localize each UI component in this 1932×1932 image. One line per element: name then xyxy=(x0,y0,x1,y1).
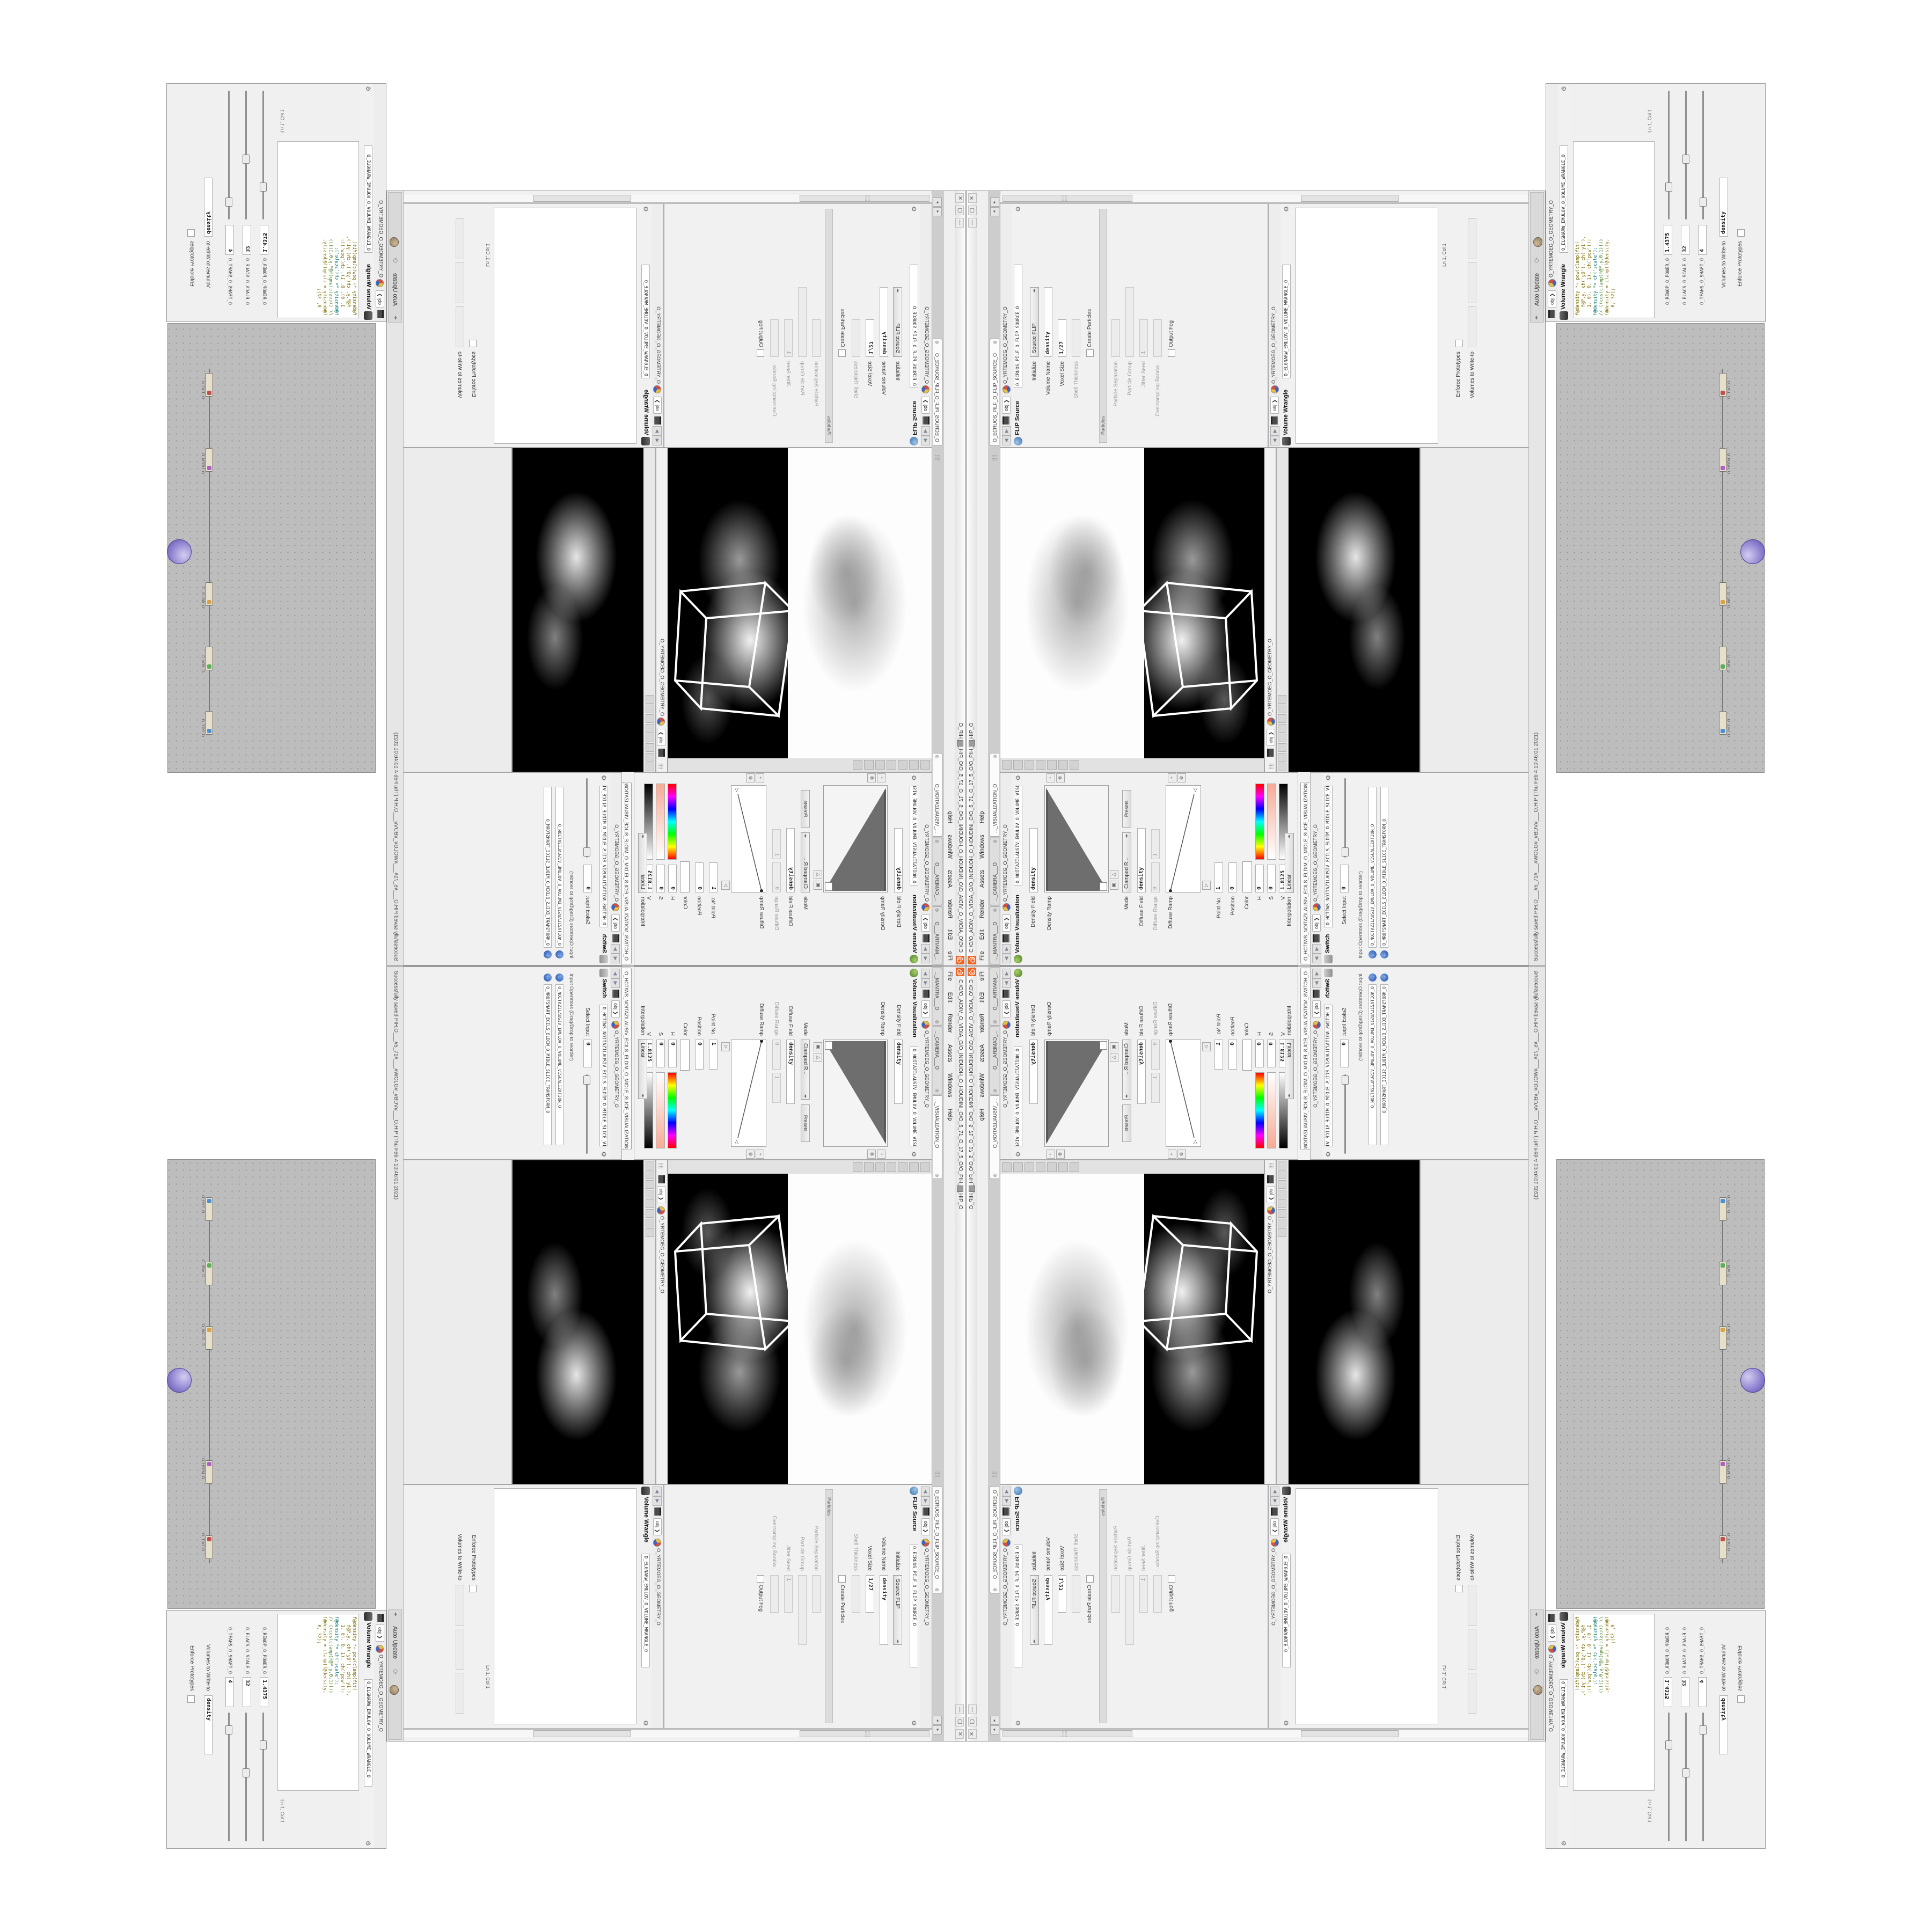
node-name-field[interactable]: O_HCTIWS_NOITAZILAUSIV_ECILS_ELDIM_O_MID… xyxy=(599,1005,608,1146)
particles-section-bar[interactable]: Particles xyxy=(1099,209,1107,443)
input-operator-name[interactable]: O_NOITAZILAUSIV_EMULOV_O_VOLUME_VISUALIZ… xyxy=(555,787,563,948)
node-name-field[interactable]: O_ELGNARW_EMULOV_O_VOLUME_WRANGLE_O xyxy=(364,145,372,253)
diffuse-range-min[interactable]: 0 xyxy=(1151,862,1160,892)
move-tool-icon[interactable] xyxy=(909,760,919,770)
tab-visualization[interactable]: ..._VISUALIZATION_O⊗ xyxy=(990,753,999,837)
ramp-delete-icon[interactable]: ⊗ xyxy=(1177,773,1186,782)
slider-handle[interactable] xyxy=(243,155,250,164)
input-operator-name[interactable]: O_NOITAZILAUSIV_EMULOV_O_VOLUME_VISUALIZ… xyxy=(555,984,563,1145)
ramp-marker[interactable] xyxy=(825,1041,832,1050)
grid-icon[interactable] xyxy=(646,1219,654,1227)
clapboard-icon[interactable] xyxy=(1548,1614,1555,1622)
tab-scroll-right-icon[interactable]: ▸ xyxy=(933,197,942,207)
close-tab-icon[interactable]: ⊗ xyxy=(933,908,942,912)
move-tool-icon[interactable] xyxy=(1013,1162,1023,1172)
node-name-field[interactable]: O_NOITAZILAUSIV_EMULOV_O_VOLUME_VISUALIZ… xyxy=(1014,1046,1022,1146)
color-swatch[interactable] xyxy=(680,1040,690,1071)
slider-handle[interactable] xyxy=(1665,1740,1672,1750)
tab-switch[interactable]: O_HCTIWS_NOITAZILAUSIV_ECILS_ELDIM_O_MID… xyxy=(622,968,632,1150)
clapboard-icon[interactable] xyxy=(1002,990,1009,998)
mode-dropdown[interactable]: Clamped R...◂▸ xyxy=(1122,1040,1131,1100)
path-node-name[interactable]: O_YRTEMOEG_O_GEOMETRY_O xyxy=(1548,200,1554,277)
path-node-name[interactable]: O_YRTEMOEG_O_GEOMETRY_O xyxy=(924,306,930,384)
volume-name-value[interactable]: density xyxy=(1044,287,1052,357)
menu-help[interactable]: Help xyxy=(977,1104,985,1126)
ramp-add-icon[interactable]: + xyxy=(756,773,764,782)
recook-icon[interactable]: ⟳ xyxy=(1533,257,1541,263)
ramp-end-marker-icon[interactable]: ◁ xyxy=(734,788,740,792)
diffuse-range-max[interactable]: 1 xyxy=(772,1073,781,1103)
clapboard-icon[interactable] xyxy=(1271,416,1278,425)
node-name-field[interactable]: O_ECRUOS_PILF_O_FLIP_SOURCE_O xyxy=(1014,1544,1022,1667)
clapboard-icon[interactable] xyxy=(1271,1507,1278,1516)
mode-dropdown[interactable]: Clamped R...◂▸ xyxy=(801,832,810,892)
ramp-flip-icon[interactable]: ▣ xyxy=(1110,881,1118,890)
pane-grip-icon[interactable]: ⣿⣿ xyxy=(1268,1162,1274,1168)
ramp-open-icon[interactable]: ▷ xyxy=(1202,881,1211,890)
nav-back-icon[interactable]: ◀ xyxy=(921,436,930,445)
tab-scroll-right-icon[interactable]: ▸ xyxy=(933,1725,942,1735)
network-node[interactable] xyxy=(205,1326,213,1350)
diffuse-range-max[interactable]: 1 xyxy=(1151,1073,1160,1103)
diffuse-range-min[interactable]: 0 xyxy=(772,862,781,892)
select-input-value[interactable]: 0 xyxy=(1340,865,1349,892)
gear-icon[interactable]: ⚙ xyxy=(1283,206,1290,212)
aov-icon[interactable] xyxy=(1278,695,1286,704)
diffuse-range-max[interactable]: 1 xyxy=(772,829,781,859)
volumes-box-3[interactable] xyxy=(1468,218,1476,259)
point-no-value[interactable]: 1 xyxy=(1214,1040,1223,1070)
oversampling-value[interactable] xyxy=(770,1575,779,1613)
diffuse-ramp-widget[interactable]: ◁ xyxy=(1166,1040,1201,1147)
network-node[interactable] xyxy=(1719,1197,1727,1221)
nav-forward-icon[interactable]: ▶ xyxy=(653,1496,662,1506)
gear-icon[interactable]: ⚙ xyxy=(642,206,649,212)
close-button[interactable]: ✕ xyxy=(968,1729,977,1739)
minimize-button[interactable]: — xyxy=(968,1704,977,1714)
menu-help[interactable]: Help xyxy=(947,807,955,829)
pause-icon[interactable] xyxy=(1278,753,1286,762)
gear-icon[interactable]: ⚙ xyxy=(1560,1840,1568,1846)
tab-mantra[interactable]: ..._MANTRA___O⊗ xyxy=(933,968,942,1026)
clapboard-icon[interactable] xyxy=(1002,416,1009,425)
scale-slider-value[interactable]: 32 xyxy=(243,1677,251,1707)
menu-assets[interactable]: Assets xyxy=(947,865,955,892)
power-slider-value[interactable]: 1.4375 xyxy=(260,225,268,255)
slider-handle[interactable] xyxy=(1682,155,1689,164)
ramp-add-icon[interactable]: + xyxy=(756,1150,764,1159)
slider-handle[interactable] xyxy=(583,847,590,857)
clapboard-icon[interactable] xyxy=(1548,310,1555,318)
ramp-flip-icon[interactable]: ▣ xyxy=(1110,1042,1118,1051)
scale-slider-value[interactable]: 32 xyxy=(243,225,251,255)
select-input-value[interactable]: 0 xyxy=(1340,1040,1349,1067)
diffuse-range-min[interactable]: 0 xyxy=(772,1040,781,1070)
node-name-field[interactable]: O_ECRUOS_PILF_O_FLIP_SOURCE_O xyxy=(910,265,918,388)
tab-scroll-left-icon[interactable]: ◂ xyxy=(933,207,942,216)
volumes-box-2[interactable] xyxy=(456,262,464,303)
ramp-open-icon[interactable]: ▷ xyxy=(721,1042,730,1051)
nav-forward-icon[interactable]: ▶ xyxy=(653,426,662,436)
nav-back-icon[interactable]: ◀ xyxy=(921,969,930,978)
tab-grip-icon[interactable]: ⣿⣿ xyxy=(991,455,997,461)
pane-scrollbar[interactable]: ⣿⣿ xyxy=(1000,1729,1529,1738)
nav-back-icon[interactable]: ◀ xyxy=(921,1487,930,1496)
network-node[interactable] xyxy=(1719,1262,1727,1285)
input-operator-name[interactable]: O_MROFSNART_ECILS_ELDIM_O_MIDLE_SLICE_TR… xyxy=(544,787,552,948)
context-flag[interactable]: obj ❯ xyxy=(1267,1186,1275,1203)
bg-icon[interactable] xyxy=(1278,1209,1286,1218)
sat-slider[interactable] xyxy=(1267,784,1276,860)
create-particles-checkbox[interactable] xyxy=(838,1575,846,1583)
jitter-seed-value[interactable]: 1 xyxy=(784,1575,793,1613)
path-node-name[interactable]: O_YRTEMOEG_O_GEOMETRY_O xyxy=(656,306,661,384)
update-arrows-icon[interactable]: ◂▸ xyxy=(1534,316,1539,320)
clapboard-icon[interactable] xyxy=(1002,1507,1009,1516)
nav-forward-icon[interactable]: ▶ xyxy=(921,944,930,954)
nav-back-icon[interactable]: ◀ xyxy=(653,436,662,445)
tab-scroll-right-icon[interactable]: ▸ xyxy=(990,197,999,207)
network-node[interactable] xyxy=(205,711,213,735)
volumes-box-1[interactable] xyxy=(456,1585,464,1626)
node-name-field[interactable]: O_HCTIWS_NOITAZILAUSIV_ECILS_ELDIM_O_MID… xyxy=(599,786,608,927)
clapboard-icon[interactable] xyxy=(1313,934,1320,942)
menu-file[interactable]: File xyxy=(977,967,985,986)
network-node[interactable] xyxy=(1719,711,1727,735)
shaft-slider[interactable] xyxy=(1702,91,1704,219)
node-name-field[interactable]: O_HCTIWS_NOITAZILAUSIV_ECILS_ELDIM_O_MID… xyxy=(1324,786,1333,927)
update-arrows-icon[interactable]: ◂▸ xyxy=(393,1612,398,1616)
close-tab-icon[interactable]: ⊗ xyxy=(933,1020,942,1024)
clapboard-icon[interactable] xyxy=(1002,934,1009,942)
clapboard-icon[interactable] xyxy=(612,990,619,998)
ramp-marker[interactable] xyxy=(825,882,832,891)
select-input-slider[interactable] xyxy=(586,778,588,858)
volumes-to-write-value[interactable]: density xyxy=(1719,1695,1728,1754)
context-flag[interactable]: obj ❯ xyxy=(921,1518,930,1535)
scrollbar-thumb[interactable]: ⣿⣿ xyxy=(1002,195,1132,202)
initialize-dropdown[interactable]: Source FLIP◂▸ xyxy=(1030,1575,1039,1645)
clapboard-icon[interactable] xyxy=(923,1507,930,1516)
nav-back-icon[interactable]: ◀ xyxy=(1312,954,1321,963)
tab-switch[interactable]: O_HCTIWS_NOITAZILAUSIV_ECILS_ELDIM_O_MID… xyxy=(1300,782,1310,964)
diffuse-field-value[interactable]: density xyxy=(786,828,795,892)
aov-icon[interactable] xyxy=(1278,1228,1286,1237)
close-tab-icon[interactable]: ⊗ xyxy=(1301,1144,1310,1148)
nav-forward-icon[interactable]: ▶ xyxy=(1312,978,1321,988)
hue-value[interactable]: 0 xyxy=(1255,865,1264,892)
handles-tool-icon[interactable] xyxy=(1047,1162,1057,1172)
nav-forward-icon[interactable]: ▶ xyxy=(1002,978,1011,988)
density-ramp-widget[interactable] xyxy=(823,785,888,892)
menu-file[interactable]: File xyxy=(977,946,985,965)
enforce-prototypes-checkbox[interactable] xyxy=(1455,1585,1463,1592)
pane-grip-icon[interactable]: ⣿⣿ xyxy=(658,1162,664,1168)
snap-tool-icon[interactable] xyxy=(864,760,874,770)
ramp-add-icon[interactable]: + xyxy=(1168,1150,1176,1159)
aov-icon[interactable] xyxy=(646,695,654,704)
maximize-button[interactable]: ▢ xyxy=(968,206,977,215)
particle-separation-value[interactable] xyxy=(1111,1575,1120,1613)
scale-slider-value[interactable]: 32 xyxy=(1681,1677,1689,1707)
tab-camera[interactable]: ..._CAMERA___O⊗ xyxy=(933,1027,942,1094)
network-node[interactable] xyxy=(1719,373,1727,397)
node-name-field[interactable]: O_ELGNARW_EMULOV_O_VOLUME_WRANGLE_O xyxy=(1282,265,1291,378)
clapboard-icon[interactable] xyxy=(923,416,930,425)
menu-assets[interactable]: Assets xyxy=(947,1040,955,1067)
diffuse-ramp-widget[interactable]: ◁ xyxy=(731,785,766,892)
node-name-field[interactable]: O_NOITAZILAUSIV_EMULOV_O_VOLUME_VISUALIZ… xyxy=(1014,786,1022,885)
path-node-name[interactable]: O_YRTEMOEG_O_GEOMETRY_O xyxy=(614,1030,619,1108)
network-node[interactable] xyxy=(205,448,213,472)
nav-forward-icon[interactable]: ▶ xyxy=(1002,944,1011,954)
tab-grip-icon[interactable]: ⣿⣿ xyxy=(935,455,941,461)
sat-value[interactable]: 0 xyxy=(1267,1040,1276,1067)
jitter-seed-value[interactable]: 1 xyxy=(1139,319,1148,357)
path-node-name[interactable]: O_YRTEMOEG_O_GEOMETRY_O xyxy=(924,1548,930,1626)
close-tab-icon[interactable]: ⊗ xyxy=(933,1173,942,1177)
context-flag[interactable]: obj ❯ xyxy=(1548,1624,1556,1642)
path-node-name[interactable]: O_YRTEMOEG_O_GEOMETRY_O xyxy=(924,824,930,902)
bg-icon[interactable] xyxy=(646,714,654,723)
ramp-add-icon[interactable]: + xyxy=(1046,1150,1055,1159)
hue-value[interactable]: 0 xyxy=(1255,1040,1264,1067)
sat-value[interactable]: 0 xyxy=(1267,865,1276,892)
nav-back-icon[interactable]: ◀ xyxy=(1002,969,1011,978)
close-tab-icon[interactable]: ⊗ xyxy=(990,1587,999,1592)
rotate-tool-icon[interactable] xyxy=(898,1162,908,1172)
jump-to-input-icon[interactable]: ← xyxy=(555,974,563,982)
path-node-name[interactable]: O_YRTEMOEG_O_GEOMETRY_O xyxy=(1271,1548,1276,1626)
viewport-lower-background[interactable] xyxy=(1144,448,1264,758)
selected-node-badge[interactable] xyxy=(1740,539,1765,564)
nav-forward-icon[interactable]: ▶ xyxy=(921,1496,930,1506)
scrollbar-thumb[interactable] xyxy=(533,195,631,202)
tab-mantra[interactable]: ..._MANTRA___O⊗ xyxy=(990,968,999,1026)
jump-to-input-icon[interactable]: ← xyxy=(544,974,552,982)
nav-forward-icon[interactable]: ▶ xyxy=(1002,1496,1011,1506)
particle-separation-value[interactable] xyxy=(812,1575,821,1613)
jump-to-input-icon[interactable]: ← xyxy=(555,950,563,958)
nav-forward-icon[interactable]: ▶ xyxy=(921,978,930,988)
tab-scroll-left-icon[interactable]: ◂ xyxy=(933,1716,942,1725)
ramp-delete-icon[interactable]: ⊗ xyxy=(1177,1150,1186,1159)
tab-mantra[interactable]: ..._MANTRA___O⊗ xyxy=(990,906,999,964)
context-flag[interactable]: obj ❯ xyxy=(1002,397,1011,414)
nav-forward-icon[interactable]: ▶ xyxy=(1002,426,1011,436)
selected-node-badge[interactable] xyxy=(1740,1368,1765,1393)
viewport-lower-background[interactable] xyxy=(668,1174,788,1484)
slider-handle[interactable] xyxy=(225,197,232,207)
initialize-dropdown[interactable]: Source FLIP◂▸ xyxy=(1030,287,1039,357)
diffuse-ramp-widget[interactable]: ◁ xyxy=(731,1040,766,1147)
clapboard-icon[interactable] xyxy=(654,416,661,425)
hue-value[interactable]: 0 xyxy=(668,1040,677,1067)
density-field-value[interactable]: density xyxy=(894,828,903,892)
viewport2-background[interactable] xyxy=(1289,448,1419,772)
nav-forward-icon[interactable]: ▶ xyxy=(1270,426,1279,436)
rotate-tool-icon[interactable] xyxy=(1024,1162,1034,1172)
particles-section-bar[interactable]: Particles xyxy=(1099,1489,1107,1723)
nav-forward-icon[interactable]: ▶ xyxy=(611,944,620,954)
shaft-slider[interactable] xyxy=(228,91,230,219)
close-tab-icon[interactable]: ⊗ xyxy=(933,1088,942,1093)
context-flag[interactable]: obj ❯ xyxy=(657,1186,665,1203)
initialize-dropdown[interactable]: Source FLIP◂▸ xyxy=(893,287,902,357)
ramp-marker[interactable] xyxy=(1100,1041,1107,1050)
scale-slider[interactable] xyxy=(1685,91,1687,219)
ramp-add-icon[interactable]: + xyxy=(1168,773,1176,782)
gamma-icon[interactable] xyxy=(646,734,654,742)
path-node-name[interactable]: O_YRTEMOEG_O_GEOMETRY_O xyxy=(660,639,665,716)
ramp-delete-icon[interactable]: ⊗ xyxy=(867,773,876,782)
shell-thickness-value[interactable] xyxy=(852,1575,860,1613)
gear-icon[interactable]: ⚙ xyxy=(600,775,608,781)
tab-camera[interactable]: ..._CAMERA___O⊗ xyxy=(990,1027,999,1094)
shaft-slider[interactable] xyxy=(1702,1713,1704,1841)
context-flag[interactable]: obj ❯ xyxy=(1312,914,1321,932)
view-tool-icon[interactable] xyxy=(1070,1162,1079,1172)
maximize-button[interactable]: ▢ xyxy=(955,1717,964,1726)
particle-group-value[interactable] xyxy=(798,1575,807,1645)
menu-help[interactable]: Help xyxy=(947,1104,955,1126)
volumes-box-3[interactable] xyxy=(456,218,464,259)
gear-icon[interactable]: ⚙ xyxy=(1324,1151,1332,1157)
context-flag[interactable]: obj ❯ xyxy=(1267,729,1275,746)
path-node-name[interactable]: O_YRTEMOEG_O_GEOMETRY_O xyxy=(660,1216,665,1293)
gear-icon[interactable]: ⚙ xyxy=(910,775,918,781)
pane-scrollbar[interactable]: ⣿⣿ xyxy=(403,1729,932,1738)
context-flag[interactable]: obj ❯ xyxy=(921,397,930,414)
density-ramp-widget[interactable] xyxy=(1044,785,1109,892)
network-node[interactable] xyxy=(205,1262,213,1285)
volumes-box-3[interactable] xyxy=(456,1673,464,1714)
network-node[interactable] xyxy=(1719,1460,1727,1484)
aov-icon[interactable] xyxy=(646,1228,654,1237)
context-flag[interactable]: obj ❯ xyxy=(653,1518,662,1535)
gear-icon[interactable]: ⚙ xyxy=(600,1151,608,1157)
tab-scroll-left-icon[interactable]: ◂ xyxy=(990,207,999,216)
interpolation-dropdown[interactable]: Linear◂▸ xyxy=(638,833,647,893)
oversampling-value[interactable] xyxy=(1153,319,1162,357)
network-node[interactable] xyxy=(1719,448,1727,472)
presets-button[interactable]: Presets xyxy=(1122,790,1131,828)
path-node-name[interactable]: O_YRTEMOEG_O_GEOMETRY_O xyxy=(614,824,619,902)
power-slider-value[interactable]: 1.4375 xyxy=(260,1677,268,1707)
network-node[interactable] xyxy=(1719,647,1727,670)
volume-name-value[interactable]: density xyxy=(880,1575,888,1645)
vexpression-editor[interactable]: f@density *= pow(clamp(fit( f@P.y, ch('y… xyxy=(277,1614,359,1791)
recook-icon[interactable]: ⟳ xyxy=(391,1669,399,1675)
jitter-seed-value[interactable]: 1 xyxy=(1139,1575,1148,1613)
shell-thickness-value[interactable] xyxy=(852,319,860,357)
clapboard-icon[interactable] xyxy=(1313,990,1320,998)
gamma-icon[interactable] xyxy=(1278,734,1286,742)
tab-flip-source[interactable]: O_ECRUOS_PILF_O_FLIP_SOURCE_O⊗ xyxy=(933,1486,942,1593)
enforce-prototypes-checkbox[interactable] xyxy=(187,229,195,237)
ramp-end-marker-icon[interactable]: ◁ xyxy=(1192,1140,1198,1144)
pause-icon[interactable] xyxy=(646,1170,654,1179)
particles-section-bar[interactable]: Particles xyxy=(825,209,833,443)
vexpression-editor[interactable] xyxy=(494,208,636,444)
input-operator-name[interactable]: O_NOITAZILAUSIV_EMULOV_O_VOLUME_VISUALIZ… xyxy=(1368,984,1377,1145)
slider-handle[interactable] xyxy=(225,1725,232,1735)
nav-back-icon[interactable]: ◀ xyxy=(611,954,620,963)
volumes-to-write-value[interactable]: density xyxy=(204,1695,213,1754)
context-flag[interactable]: obj ❯ xyxy=(611,914,620,932)
menu-assets[interactable]: Assets xyxy=(977,1040,985,1067)
tab-visualization[interactable]: ..._VISUALIZATION_O⊗ xyxy=(990,1095,999,1179)
output-fog-checkbox[interactable] xyxy=(1168,349,1175,357)
jump-to-input-icon[interactable]: ← xyxy=(544,950,552,958)
network-node[interactable] xyxy=(205,1460,213,1484)
diffuse-range-max[interactable]: 1 xyxy=(1151,829,1160,859)
snapshot-icon[interactable] xyxy=(1278,743,1286,752)
shaft-slider-value[interactable]: 4 xyxy=(1698,1677,1707,1707)
view-tool-icon[interactable] xyxy=(853,760,862,770)
clapboard-icon[interactable] xyxy=(923,934,930,942)
voxel-size-value[interactable]: 1/27 xyxy=(866,1575,874,1613)
rotate-tool-icon[interactable] xyxy=(1024,760,1034,770)
density-ramp-widget[interactable] xyxy=(1044,1040,1109,1147)
ramp-end-marker-icon[interactable]: ◁ xyxy=(1192,788,1198,792)
scale-tool-icon[interactable] xyxy=(1036,760,1045,770)
nav-back-icon[interactable]: ◀ xyxy=(1002,436,1011,445)
ramp-flip-icon[interactable]: ▣ xyxy=(814,1042,822,1051)
power-slider[interactable] xyxy=(262,1713,264,1841)
close-tab-icon[interactable]: ⊗ xyxy=(1301,784,1310,788)
clapboard-icon[interactable] xyxy=(377,310,384,318)
tab-flip-source[interactable]: O_ECRUOS_PILF_O_FLIP_SOURCE_O⊗ xyxy=(990,1486,999,1593)
path-node-name[interactable]: O_YRTEMOEG_O_GEOMETRY_O xyxy=(1271,306,1276,384)
presets-button[interactable]: Presets xyxy=(1122,1104,1131,1142)
scrollbar-thumb[interactable] xyxy=(1301,195,1399,202)
close-tab-icon[interactable]: ⊗ xyxy=(990,908,999,912)
oversampling-value[interactable] xyxy=(770,319,779,357)
diffuse-ramp-widget[interactable]: ◁ xyxy=(1166,785,1201,892)
enforce-prototypes-checkbox[interactable] xyxy=(1737,229,1745,237)
tab-switch[interactable]: O_HCTIWS_NOITAZILAUSIV_ECILS_ELDIM_O_MID… xyxy=(622,782,632,964)
menu-edit[interactable]: Edit xyxy=(947,987,955,1007)
density-field-value[interactable]: density xyxy=(1029,1040,1038,1104)
close-tab-icon[interactable]: ⊗ xyxy=(933,1587,942,1592)
path-node-name[interactable]: O_YRTEMOEG_O_GEOMETRY_O xyxy=(1548,1655,1554,1732)
ramp-expand-icon[interactable]: △ xyxy=(814,870,822,879)
vexpression-editor[interactable] xyxy=(1296,208,1438,444)
network-editor-pane[interactable]: O_PILF_O O_BDV_O O_WOLG_O O_HSEM_O O_TUO… xyxy=(1556,323,1765,773)
context-flag[interactable]: obj ❯ xyxy=(376,290,384,308)
voxel-size-value[interactable]: 1/27 xyxy=(1058,319,1066,357)
menu-file[interactable]: File xyxy=(947,946,955,965)
handles-tool-icon[interactable] xyxy=(875,760,885,770)
tab-switch[interactable]: O_HCTIWS_NOITAZILAUSIV_ECILS_ELDIM_O_MID… xyxy=(1300,968,1310,1150)
context-flag[interactable]: obj ❯ xyxy=(1548,290,1556,308)
network-node[interactable] xyxy=(205,647,213,670)
tab-flip-source[interactable]: O_ECRUOS_PILF_O_FLIP_SOURCE_O⊗ xyxy=(933,339,942,446)
context-flag[interactable]: obj ❯ xyxy=(376,1624,384,1642)
ramp-marker[interactable] xyxy=(1100,882,1107,891)
bg-icon[interactable] xyxy=(1278,714,1286,723)
node-name-field[interactable]: O_ELGNARW_EMULOV_O_VOLUME_WRANGLE_O xyxy=(641,265,650,378)
select-input-value[interactable]: 0 xyxy=(583,865,592,892)
node-name-field[interactable]: O_NOITAZILAUSIV_EMULOV_O_VOLUME_VISUALIZ… xyxy=(910,786,918,885)
ramp-expand-icon[interactable]: △ xyxy=(814,1053,822,1062)
gamma-icon[interactable] xyxy=(1278,1190,1286,1198)
close-button[interactable]: ✕ xyxy=(955,193,964,203)
context-flag[interactable]: obj ❯ xyxy=(657,729,665,746)
clapboard-icon[interactable] xyxy=(612,934,619,942)
scale-slider[interactable] xyxy=(245,91,247,219)
